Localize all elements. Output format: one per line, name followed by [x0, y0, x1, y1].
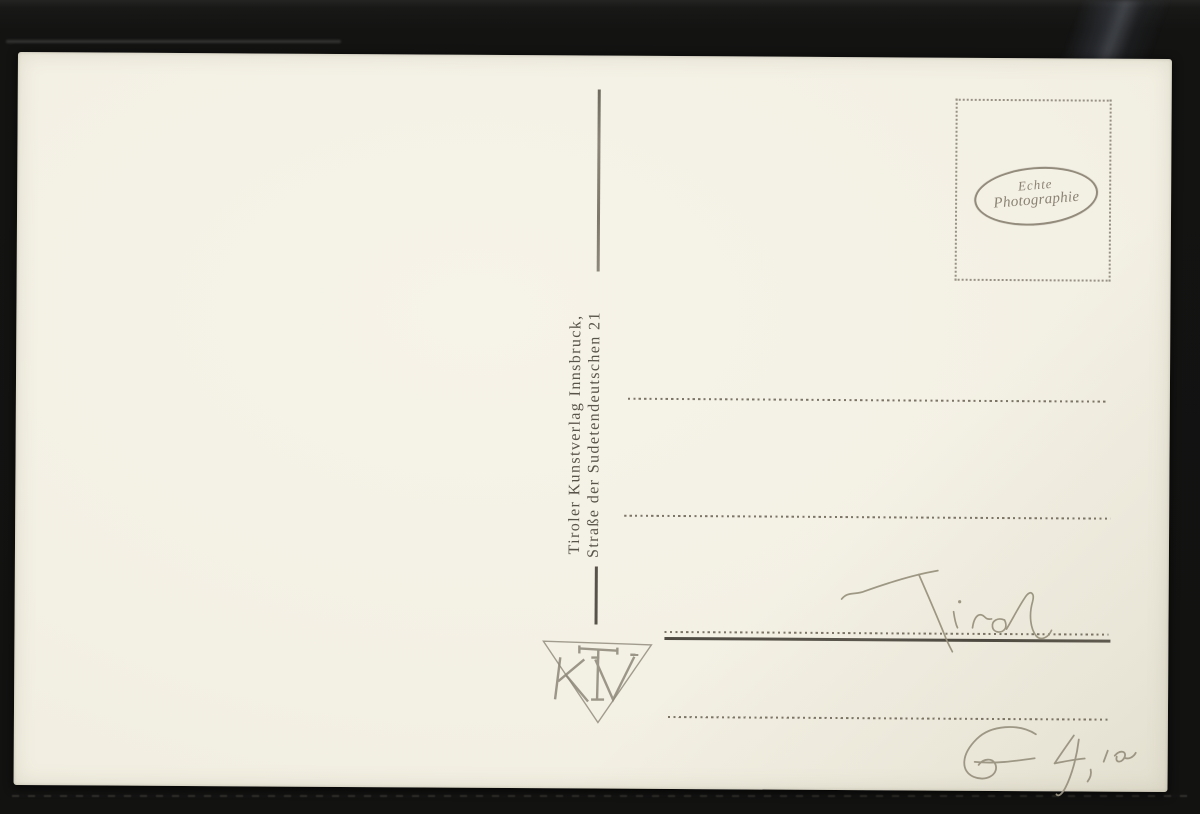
stamp-box: Echte Photographie	[955, 99, 1112, 282]
handwriting-price	[938, 713, 1139, 804]
frame-edge-highlight	[6, 40, 341, 43]
handwriting-tirol	[834, 552, 1085, 724]
postcard-back: Echte Photographie Tiroler Kunstverlag I…	[14, 52, 1172, 792]
publisher-imprint: Tiroler Kunstverlag Innsbruck, Straße de…	[565, 274, 607, 594]
address-ruled-line-1	[628, 398, 1108, 403]
tkv-monogram-logo	[541, 639, 658, 730]
divider-line-lower	[595, 567, 598, 625]
photo-background: Echte Photographie Tiroler Kunstverlag I…	[0, 0, 1200, 814]
address-ruled-line-2	[624, 515, 1110, 520]
echte-photographie-stamp: Echte Photographie	[972, 162, 1100, 230]
publisher-line1: Tiroler Kunstverlag Innsbruck,	[565, 274, 586, 594]
divider-line-upper	[597, 90, 601, 272]
publisher-line2: Straße der Sudetendeutschen 21	[584, 274, 605, 594]
